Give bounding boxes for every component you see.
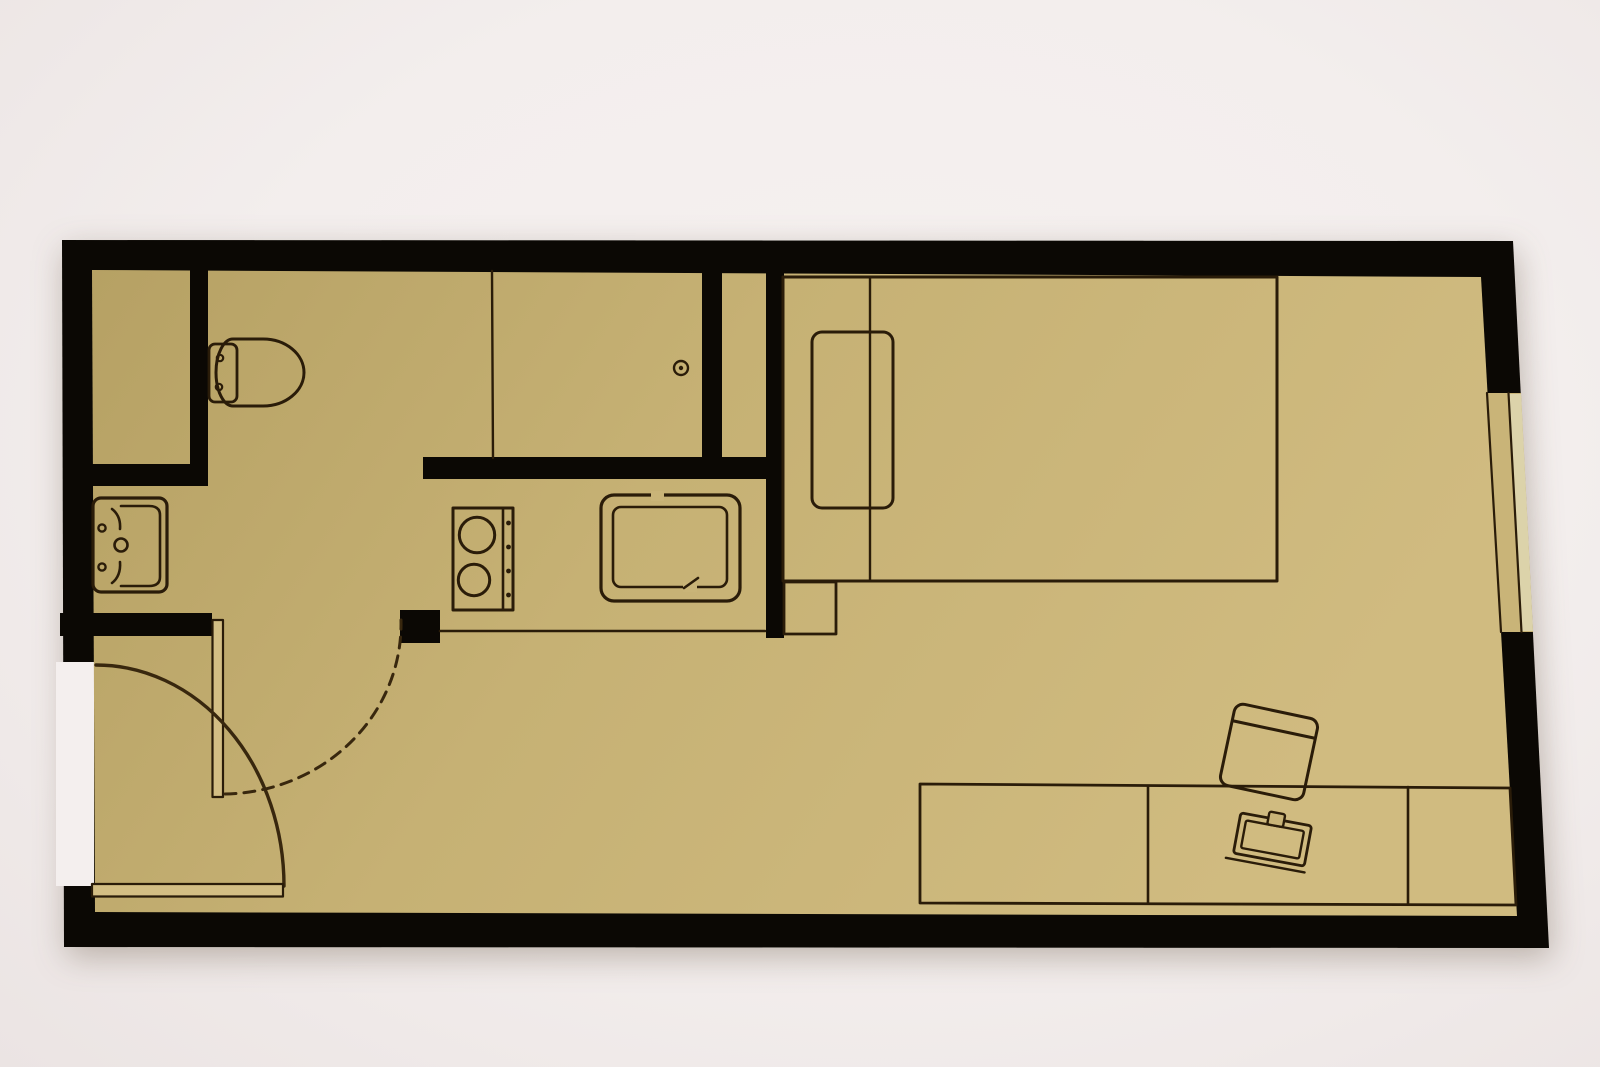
shower-partition-wall — [702, 270, 722, 462]
kitchen-entry-stub-wall — [400, 610, 440, 643]
floor-plan-root — [56, 240, 1549, 948]
bathroom-door-leaf — [213, 620, 224, 797]
bathroom-bottom-wall — [60, 613, 212, 636]
stove-knob-3 — [506, 569, 511, 574]
entry-door-opening-gap — [56, 662, 94, 886]
shaft-bottom-wall — [91, 464, 208, 486]
entry-door-leaf — [92, 884, 283, 897]
floor-plan-canvas — [0, 0, 1600, 1067]
kitchen-top-wall — [423, 457, 783, 479]
floor-plan-image — [0, 0, 1600, 1067]
kitchen-sink-gap-patch — [651, 491, 664, 501]
laptop-camera-tab — [1267, 811, 1285, 827]
shaft-right-wall — [190, 270, 208, 486]
floor — [92, 270, 1517, 916]
stove-knob-4 — [506, 593, 511, 598]
shower-drain-dot — [679, 366, 683, 370]
kitchen-bedroom-wall — [766, 270, 784, 638]
stove-knob-2 — [506, 545, 511, 550]
shower-glass-line — [492, 271, 493, 458]
stove-knob-1 — [506, 521, 511, 526]
